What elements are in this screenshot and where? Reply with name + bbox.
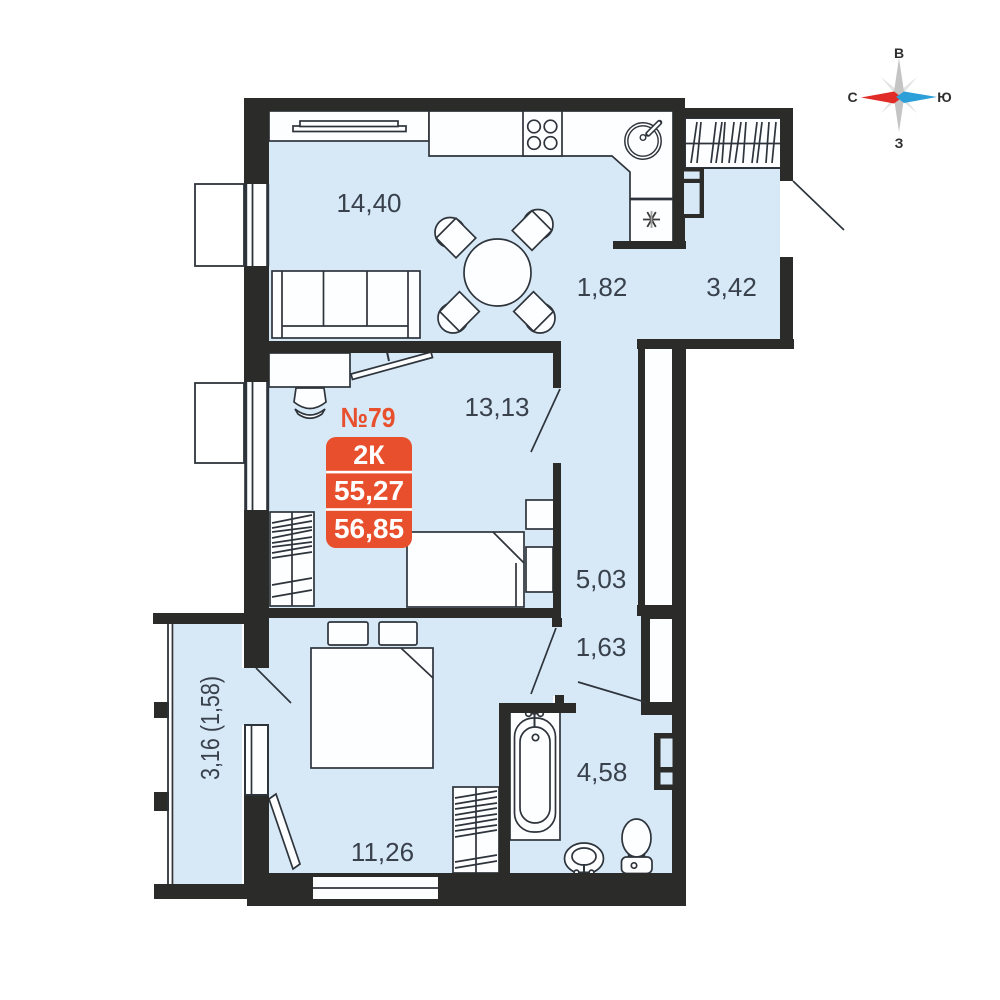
svg-text:13,13: 13,13 (464, 392, 529, 422)
svg-text:55,27: 55,27 (334, 475, 404, 506)
svg-text:4,58: 4,58 (577, 757, 628, 787)
svg-text:З: З (895, 135, 904, 151)
svg-text:11,26: 11,26 (351, 837, 414, 867)
svg-text:1,82: 1,82 (577, 272, 628, 302)
svg-text:56,85: 56,85 (334, 513, 404, 544)
svg-text:2К: 2К (353, 440, 385, 470)
svg-text:В: В (894, 45, 904, 61)
svg-text:3,42: 3,42 (706, 272, 757, 302)
svg-text:Ю: Ю (937, 89, 951, 105)
svg-text:14,40: 14,40 (336, 188, 401, 218)
svg-text:5,03: 5,03 (576, 564, 627, 594)
svg-text:С: С (847, 89, 857, 105)
svg-text:№79: №79 (341, 402, 396, 433)
svg-text:1,63: 1,63 (576, 632, 627, 662)
svg-text:3,16 (1,58): 3,16 (1,58) (195, 676, 225, 780)
